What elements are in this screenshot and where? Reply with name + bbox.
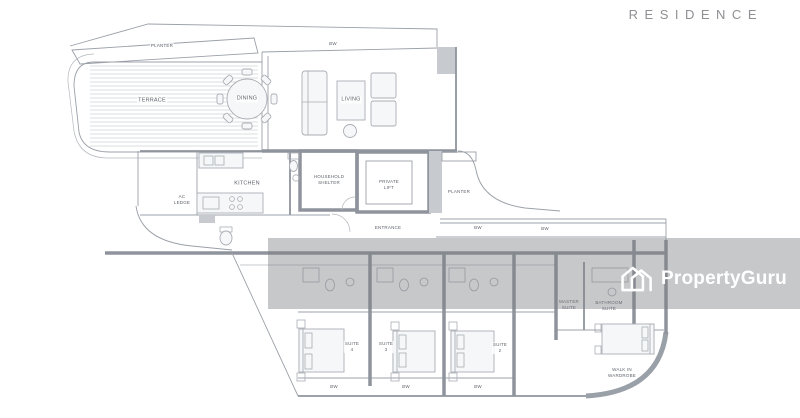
propertyguru-house-icon — [620, 264, 654, 294]
label-kitchen: KITCHEN — [233, 180, 261, 187]
bed-master-suite — [595, 324, 654, 354]
label-bay-window-bottom-3: BW — [473, 384, 483, 390]
label-bay-window-mid-1: BW — [473, 225, 483, 231]
watermark-band: PropertyGuru — [268, 238, 800, 309]
label-terrace: TERRACE — [137, 97, 167, 104]
label-bay-window-mid-2: BW — [540, 226, 550, 232]
bed-suite-4 — [297, 320, 344, 381]
label-walk-in-wardrobe: WALK IN WARDROBE — [607, 367, 637, 379]
label-suite-4: SUITE 4 — [344, 341, 360, 353]
label-bay-window-bottom-1: BW — [329, 384, 339, 390]
label-ac-ledge: AC LEDGE — [173, 194, 191, 206]
floorplan-image: RESIDENCE — [0, 0, 800, 418]
label-entrance: ENTRANCE — [374, 225, 402, 231]
label-private-lift: PRIVATE LIFT — [378, 179, 400, 191]
label-dining: DINING — [236, 95, 258, 102]
bed-suite-2 — [449, 322, 494, 381]
living-sofa-set — [302, 71, 396, 138]
propertyguru-wordmark: PropertyGuru — [661, 268, 787, 290]
bed-suite-3 — [391, 322, 435, 381]
label-planter-top: PLANTER — [150, 43, 174, 49]
label-bay-window-top: BW — [328, 41, 338, 47]
label-suite-3: SUITE 3 — [378, 341, 394, 353]
label-bay-window-bottom-2: BW — [401, 384, 411, 390]
label-household-shelter: HOUSEHOLD SHELTER — [313, 174, 345, 186]
propertyguru-watermark: PropertyGuru — [620, 264, 787, 294]
label-living: LIVING — [340, 96, 361, 103]
label-planter-right: PLANTER — [447, 189, 471, 195]
floorplan-linework — [0, 0, 800, 418]
label-suite-2: SUITE 2 — [492, 342, 508, 354]
powder-toilet — [220, 227, 232, 245]
